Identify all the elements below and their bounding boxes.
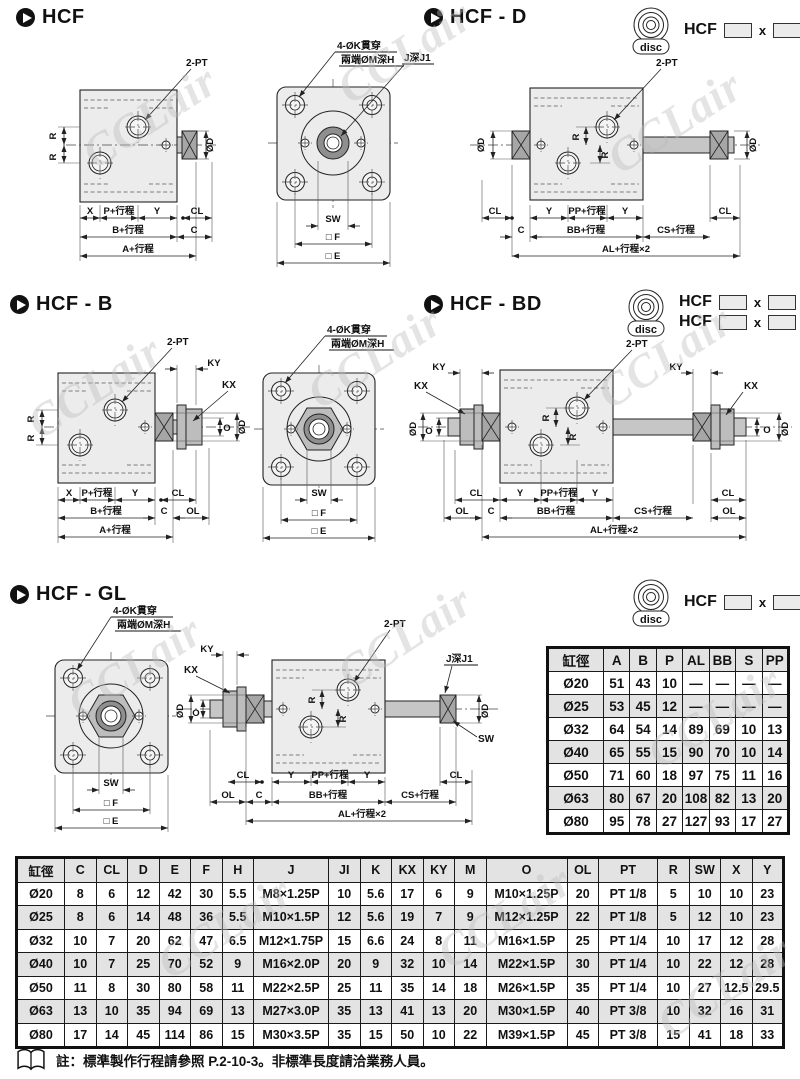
spec-cell: — bbox=[762, 695, 788, 718]
spec-cell: PT 3/8 bbox=[599, 1000, 658, 1024]
spec-cell: 17 bbox=[689, 929, 721, 953]
spec-cell: 16 bbox=[762, 764, 788, 787]
bore-size-box bbox=[719, 295, 747, 310]
spec-cell: 80 bbox=[159, 976, 191, 1000]
spec-cell: 13 bbox=[222, 1000, 254, 1024]
disc-logo-icon: disc bbox=[625, 576, 677, 628]
svg-text:ØD: ØD bbox=[476, 138, 487, 152]
column-header: B bbox=[630, 648, 656, 672]
svg-text:P+行程: P+行程 bbox=[104, 205, 135, 217]
bore-dimension-table-secondary: 缸徑ABPALBBSPPØ20514310————Ø25534512————Ø3… bbox=[546, 646, 790, 835]
row-header-bore: Ø25 bbox=[548, 695, 604, 718]
svg-text:R: R bbox=[26, 415, 37, 422]
hcf-dimension-drawing: 2-PT ØD R R X P+行程 Y CL B+行程 C A+行程 4-ØK… bbox=[0, 30, 440, 280]
spec-cell: 9 bbox=[222, 953, 254, 977]
spec-cell: 20 bbox=[656, 787, 682, 810]
spec-cell: 10 bbox=[65, 929, 97, 953]
spec-cell: 7 bbox=[96, 953, 128, 977]
hcf-bd-side-view bbox=[418, 370, 792, 483]
spec-cell: 22 bbox=[689, 953, 721, 977]
column-header: Y bbox=[752, 858, 784, 883]
spec-cell: 10 bbox=[736, 741, 762, 764]
spec-cell: 35 bbox=[392, 976, 424, 1000]
column-header: PP bbox=[762, 648, 788, 672]
svg-text:PP+行程: PP+行程 bbox=[311, 769, 349, 781]
column-header: JI bbox=[329, 858, 361, 883]
dim-label-kx: KX bbox=[222, 380, 236, 391]
section-title-hcf: HCF bbox=[16, 6, 85, 29]
column-header: D bbox=[128, 858, 160, 883]
svg-text:SW: SW bbox=[311, 488, 326, 499]
table-row: Ø321072062476.5M12×1.75P156.624811M16×1.… bbox=[17, 929, 784, 953]
spec-cell: 8 bbox=[65, 882, 97, 906]
spec-cell: PT 1/4 bbox=[599, 929, 658, 953]
spec-cell: 48 bbox=[159, 906, 191, 930]
spec-cell: M22×1.5P bbox=[486, 953, 567, 977]
spec-cell: 29.5 bbox=[752, 976, 784, 1000]
bore-size-box bbox=[724, 595, 752, 610]
hcf-d-dimension-drawing: 2-PT ØD ØD R R CL Y PP+行程 Y CL C BB+行程 C… bbox=[410, 30, 800, 280]
svg-text:Y: Y bbox=[364, 770, 371, 781]
spec-cell: 20 bbox=[128, 929, 160, 953]
spec-cell: 10 bbox=[689, 882, 721, 906]
section-title-hcf-gl: HCF - GL bbox=[10, 583, 127, 606]
svg-text:disc: disc bbox=[635, 324, 657, 336]
svg-text:KY: KY bbox=[432, 362, 446, 373]
column-header: KX bbox=[392, 858, 424, 883]
spec-cell: 41 bbox=[392, 1000, 424, 1024]
spec-cell: 10 bbox=[721, 906, 753, 930]
bullet-play-icon bbox=[10, 295, 29, 314]
row-header-bore: Ø80 bbox=[548, 810, 604, 834]
svg-text:A+行程: A+行程 bbox=[99, 524, 131, 536]
svg-text:ØD: ØD bbox=[237, 420, 248, 434]
svg-text:BB+行程: BB+行程 bbox=[309, 789, 348, 801]
spec-cell: 9 bbox=[455, 882, 487, 906]
row-header-bore: Ø80 bbox=[17, 1023, 65, 1048]
spec-cell: M10×1.25P bbox=[486, 882, 567, 906]
disc-logo-icon: disc bbox=[625, 4, 677, 56]
spec-cell: 10 bbox=[658, 953, 690, 977]
spec-cell: 86 bbox=[191, 1023, 223, 1048]
svg-text:Y: Y bbox=[154, 206, 161, 217]
spec-cell: 18 bbox=[721, 1023, 753, 1048]
spec-cell: 13 bbox=[736, 787, 762, 810]
spec-cell: 7 bbox=[423, 906, 455, 930]
spec-cell: 40 bbox=[567, 1000, 599, 1024]
row-header-bore: Ø32 bbox=[548, 718, 604, 741]
spec-cell: 11 bbox=[360, 976, 392, 1000]
spec-cell: 60 bbox=[630, 764, 656, 787]
spec-cell: 23 bbox=[752, 906, 784, 930]
spec-cell: 94 bbox=[159, 1000, 191, 1024]
model-code-badge-st: disc HCF x ST bbox=[625, 4, 800, 56]
spec-cell: M8×1.25P bbox=[254, 882, 329, 906]
spec-cell: 62 bbox=[159, 929, 191, 953]
column-header: 缸徑 bbox=[17, 858, 65, 883]
spec-cell: 6.5 bbox=[222, 929, 254, 953]
stroke-box bbox=[768, 315, 796, 330]
table-row: Ø63131035946913M27×3.0P3513411320M30×1.5… bbox=[17, 1000, 784, 1024]
hcf-d-side-view bbox=[470, 88, 760, 200]
table-row: Ø801714451148615M30×3.5P3515501022M39×1.… bbox=[17, 1023, 784, 1048]
svg-text:C: C bbox=[161, 506, 168, 517]
svg-text:OL: OL bbox=[186, 506, 199, 517]
spec-cell: 70 bbox=[159, 953, 191, 977]
svg-text:CS+行程: CS+行程 bbox=[657, 224, 695, 236]
header-row: 缸徑CCLDEFHJJIKKXKYMOOLPTRSWXY bbox=[17, 858, 784, 883]
spec-cell: 20 bbox=[567, 882, 599, 906]
spec-cell: 13 bbox=[762, 718, 788, 741]
spec-cell: 71 bbox=[604, 764, 630, 787]
svg-text:R: R bbox=[568, 433, 579, 440]
spec-cell: 54 bbox=[630, 718, 656, 741]
spec-cell: 19 bbox=[392, 906, 424, 930]
svg-text:ØD: ØD bbox=[748, 138, 759, 152]
spec-cell: 28 bbox=[752, 953, 784, 977]
spec-cell: 12 bbox=[128, 882, 160, 906]
row-header-bore: Ø50 bbox=[548, 764, 604, 787]
svg-text:ØD: ØD bbox=[480, 704, 491, 718]
hcf-front-view bbox=[268, 79, 398, 208]
row-header-bore: Ø32 bbox=[17, 929, 65, 953]
note-text: 註：標準製作行程請參照 P.2-10-3。非標準長度請洽業務人員。 bbox=[56, 1050, 434, 1070]
spec-cell: M12×1.25P bbox=[486, 906, 567, 930]
spec-cell: 6 bbox=[423, 882, 455, 906]
svg-text:R: R bbox=[26, 434, 37, 441]
hcf-b-front-view bbox=[254, 365, 384, 493]
svg-text:OL: OL bbox=[221, 790, 234, 801]
svg-text:Y: Y bbox=[288, 770, 295, 781]
spec-cell: 24 bbox=[392, 929, 424, 953]
spec-cell: 5.6 bbox=[360, 906, 392, 930]
bore-size-box bbox=[724, 23, 752, 38]
svg-text:Y: Y bbox=[546, 206, 553, 217]
svg-text:兩端ØM深H: 兩端ØM深H bbox=[331, 337, 384, 350]
spec-cell: 35 bbox=[329, 1000, 361, 1024]
spec-cell: 17 bbox=[736, 810, 762, 834]
svg-text:SW: SW bbox=[325, 214, 340, 225]
stroke-box bbox=[768, 295, 796, 310]
table-row: Ø20861242305.5M8×1.25P105.61769M10×1.25P… bbox=[17, 882, 784, 906]
spec-cell: M30×3.5P bbox=[254, 1023, 329, 1048]
spec-cell: 6 bbox=[96, 882, 128, 906]
svg-text:SW: SW bbox=[103, 778, 118, 789]
hcf-b-dimension-drawing: 2-PT KY KX O ØD R R X P+行程 Y CL B+行程 C O… bbox=[0, 285, 440, 570]
spec-cell: 10 bbox=[658, 1000, 690, 1024]
svg-text:KY: KY bbox=[200, 644, 214, 655]
spec-cell: 30 bbox=[128, 976, 160, 1000]
svg-text:R: R bbox=[307, 696, 318, 703]
spec-cell: — bbox=[683, 695, 709, 718]
spec-cell: 93 bbox=[709, 810, 735, 834]
column-header: AL bbox=[683, 648, 709, 672]
svg-text:CL: CL bbox=[470, 488, 483, 499]
spec-cell: M26×1.5P bbox=[486, 976, 567, 1000]
svg-text:CL: CL bbox=[450, 770, 463, 781]
spec-cell: 12 bbox=[656, 695, 682, 718]
svg-text:□ F: □ F bbox=[326, 232, 340, 243]
dim-label-ky: KY bbox=[207, 358, 221, 369]
table-row: Ø3264541489691013 bbox=[548, 718, 789, 741]
bullet-play-icon bbox=[424, 295, 443, 314]
spec-cell: 14 bbox=[455, 953, 487, 977]
spec-cell: 18 bbox=[455, 976, 487, 1000]
dim-label-sw-flats: SW bbox=[478, 734, 495, 745]
svg-text:□ E: □ E bbox=[104, 816, 119, 827]
row-header-bore: Ø20 bbox=[548, 672, 604, 695]
spec-cell: 30 bbox=[567, 953, 599, 977]
spec-cell: — bbox=[762, 672, 788, 695]
spec-cell: 11 bbox=[65, 976, 97, 1000]
dim-label-m-depth: 兩端ØM深H bbox=[341, 53, 394, 66]
column-header: R bbox=[658, 858, 690, 883]
spec-cell: M16×1.5P bbox=[486, 929, 567, 953]
spec-cell: 15 bbox=[222, 1023, 254, 1048]
spec-cell: 27 bbox=[689, 976, 721, 1000]
svg-text:□ E: □ E bbox=[312, 526, 327, 537]
spec-cell: 43 bbox=[630, 672, 656, 695]
spec-cell: 14 bbox=[96, 1023, 128, 1048]
footer-note: 註：標準製作行程請參照 P.2-10-3。非標準長度請洽業務人員。 bbox=[16, 1048, 434, 1072]
column-header: O bbox=[486, 858, 567, 883]
spec-cell: 97 bbox=[683, 764, 709, 787]
spec-cell: 14 bbox=[656, 718, 682, 741]
spec-cell: 10 bbox=[423, 953, 455, 977]
svg-text:兩端ØM深H: 兩端ØM深H bbox=[117, 618, 170, 631]
spec-cell: 7 bbox=[96, 929, 128, 953]
svg-text:2-PT: 2-PT bbox=[384, 619, 406, 630]
spec-cell: 17 bbox=[65, 1023, 97, 1048]
hcf-side-view bbox=[66, 90, 216, 202]
spec-cell: 14 bbox=[423, 976, 455, 1000]
svg-text:ØD: ØD bbox=[408, 422, 419, 436]
column-header: PT bbox=[599, 858, 658, 883]
column-header: SW bbox=[689, 858, 721, 883]
svg-text:BB+行程: BB+行程 bbox=[537, 505, 576, 517]
spec-cell: 20 bbox=[455, 1000, 487, 1024]
spec-cell: 69 bbox=[709, 718, 735, 741]
dimension-table-main: 缸徑CCLDEFHJJIKKXKYMOOLPTRSWXYØ20861242305… bbox=[15, 856, 785, 1049]
spec-cell: 89 bbox=[683, 718, 709, 741]
svg-text:B+行程: B+行程 bbox=[112, 224, 144, 236]
spec-cell: 42 bbox=[159, 882, 191, 906]
svg-text:AL+行程×2: AL+行程×2 bbox=[590, 524, 638, 536]
spec-cell: 13 bbox=[360, 1000, 392, 1024]
bore-size-box bbox=[719, 315, 747, 330]
dim-label-4k: 4-ØK貫穿 bbox=[337, 39, 381, 52]
spec-cell: 10 bbox=[65, 953, 97, 977]
svg-text:□ E: □ E bbox=[326, 251, 341, 262]
svg-text:C: C bbox=[488, 506, 495, 517]
spec-cell: 22 bbox=[455, 1023, 487, 1048]
spec-cell: 10 bbox=[721, 882, 753, 906]
spec-cell: M27×3.0P bbox=[254, 1000, 329, 1024]
column-header: S bbox=[736, 648, 762, 672]
spec-cell: 20 bbox=[762, 787, 788, 810]
svg-text:PP+行程: PP+行程 bbox=[540, 487, 578, 499]
spec-cell: 32 bbox=[392, 953, 424, 977]
page-title: HCF bbox=[42, 6, 85, 29]
spec-cell: 5.5 bbox=[222, 882, 254, 906]
svg-text:CS+行程: CS+行程 bbox=[401, 789, 439, 801]
spec-cell: — bbox=[709, 672, 735, 695]
spec-cell: 82 bbox=[709, 787, 735, 810]
spec-cell: PT 1/8 bbox=[599, 882, 658, 906]
hcf-gl-front-view bbox=[46, 652, 176, 781]
column-header: K bbox=[360, 858, 392, 883]
spec-cell: 10 bbox=[96, 1000, 128, 1024]
spec-cell: 10 bbox=[656, 672, 682, 695]
spec-cell: 52 bbox=[191, 953, 223, 977]
svg-text:KX: KX bbox=[744, 381, 758, 392]
spec-cell: — bbox=[709, 695, 735, 718]
spec-cell: 14 bbox=[128, 906, 160, 930]
spec-cell: 6.6 bbox=[360, 929, 392, 953]
svg-text:ØD: ØD bbox=[175, 704, 186, 718]
disc-logo-icon: disc bbox=[620, 286, 672, 338]
spec-cell: 8 bbox=[65, 906, 97, 930]
spec-cell: 5.6 bbox=[360, 882, 392, 906]
spec-cell: 31 bbox=[752, 1000, 784, 1024]
svg-text:PP+行程: PP+行程 bbox=[568, 205, 606, 217]
spec-cell: 12.5 bbox=[721, 976, 753, 1000]
dim-label-2pt: 2-PT bbox=[656, 58, 678, 69]
spec-cell: 25 bbox=[567, 929, 599, 953]
svg-text:Y: Y bbox=[132, 488, 139, 499]
row-header-bore: Ø20 bbox=[17, 882, 65, 906]
dim-label-r: R bbox=[48, 153, 59, 160]
svg-text:CL: CL bbox=[191, 206, 204, 217]
bullet-play-icon bbox=[10, 585, 29, 604]
spec-cell: 5.5 bbox=[222, 906, 254, 930]
dim-label-r: R bbox=[48, 132, 59, 139]
svg-text:CL: CL bbox=[172, 488, 185, 499]
section-title-hcf-d: HCF - D bbox=[424, 6, 527, 29]
spec-cell: 9 bbox=[455, 906, 487, 930]
spec-cell: 67 bbox=[630, 787, 656, 810]
row-header-bore: Ø63 bbox=[17, 1000, 65, 1024]
svg-text:CL: CL bbox=[722, 488, 735, 499]
spec-cell: M10×1.5P bbox=[254, 906, 329, 930]
table-row: Ø80957827127931727 bbox=[548, 810, 789, 834]
svg-text:X: X bbox=[66, 488, 73, 499]
spec-cell: 50 bbox=[392, 1023, 424, 1048]
svg-text:OL: OL bbox=[722, 506, 735, 517]
svg-text:J深J1: J深J1 bbox=[446, 652, 473, 665]
bullet-play-icon bbox=[424, 8, 443, 27]
spec-cell: 15 bbox=[656, 741, 682, 764]
spec-cell: 13 bbox=[423, 1000, 455, 1024]
spec-cell: 5 bbox=[658, 906, 690, 930]
spec-cell: 127 bbox=[683, 810, 709, 834]
column-header: A bbox=[604, 648, 630, 672]
spec-cell: 10 bbox=[736, 718, 762, 741]
spec-cell: 17 bbox=[392, 882, 424, 906]
svg-text:BB+行程: BB+行程 bbox=[567, 224, 606, 236]
bullet-play-icon bbox=[16, 8, 35, 27]
table-row: Ø401072570529M16×2.0P209321014M22×1.5P30… bbox=[17, 953, 784, 977]
column-header: F bbox=[191, 858, 223, 883]
svg-text:R: R bbox=[600, 151, 611, 158]
spec-cell: 36 bbox=[191, 906, 223, 930]
column-header: X bbox=[721, 858, 753, 883]
stroke-box bbox=[773, 23, 800, 38]
spec-cell: PT 1/4 bbox=[599, 976, 658, 1000]
svg-text:□ F: □ F bbox=[312, 508, 326, 519]
spec-cell: 108 bbox=[683, 787, 709, 810]
svg-text:2-PT: 2-PT bbox=[626, 339, 648, 350]
svg-text:2-PT: 2-PT bbox=[167, 337, 189, 348]
svg-text:O: O bbox=[425, 426, 432, 437]
section-title-hcf-bd: HCF - BD bbox=[424, 293, 542, 316]
spec-cell: 51 bbox=[604, 672, 630, 695]
spec-cell: 11 bbox=[736, 764, 762, 787]
stroke-box bbox=[773, 595, 800, 610]
spec-cell: 95 bbox=[604, 810, 630, 834]
svg-text:KX: KX bbox=[184, 665, 198, 676]
spec-cell: — bbox=[736, 695, 762, 718]
spec-cell: 41 bbox=[689, 1023, 721, 1048]
row-header-bore: Ø40 bbox=[548, 741, 604, 764]
svg-text:AL+行程×2: AL+行程×2 bbox=[338, 808, 386, 820]
svg-text:AL+行程×2: AL+行程×2 bbox=[602, 243, 650, 255]
column-header: M bbox=[455, 858, 487, 883]
spec-cell: 65 bbox=[604, 741, 630, 764]
column-header: 缸徑 bbox=[548, 648, 604, 672]
svg-text:Y: Y bbox=[622, 206, 629, 217]
spec-cell: 16 bbox=[721, 1000, 753, 1024]
spec-cell: 18 bbox=[656, 764, 682, 787]
hcf-gl-dimension-drawing: 4-ØK貫穿 兩端ØM深H SW □ F □ E 2-PT KY KX bbox=[0, 575, 540, 860]
svg-text:KY: KY bbox=[669, 362, 683, 373]
table-row: Ø63806720108821320 bbox=[548, 787, 789, 810]
column-header: BB bbox=[709, 648, 735, 672]
spec-cell: 10 bbox=[423, 1023, 455, 1048]
svg-text:ØD: ØD bbox=[780, 422, 791, 436]
svg-text:A+行程: A+行程 bbox=[122, 243, 154, 255]
column-header: C bbox=[65, 858, 97, 883]
spec-cell: 32 bbox=[689, 1000, 721, 1024]
column-header: H bbox=[222, 858, 254, 883]
spec-cell: 12 bbox=[721, 929, 753, 953]
spec-cell: 33 bbox=[752, 1023, 784, 1048]
svg-text:KX: KX bbox=[414, 381, 428, 392]
spec-cell: 23 bbox=[752, 882, 784, 906]
model-code-badge-g: disc HCF x G bbox=[625, 576, 800, 628]
table-row: Ø5071601897751116 bbox=[548, 764, 789, 787]
dim-label-od: ØD bbox=[205, 138, 216, 152]
spec-cell: M30×1.5P bbox=[486, 1000, 567, 1024]
svg-text:C: C bbox=[256, 790, 263, 801]
svg-text:C: C bbox=[518, 225, 525, 236]
svg-text:C: C bbox=[191, 225, 198, 236]
row-header-bore: Ø63 bbox=[548, 787, 604, 810]
model-code-badge-b-bd: disc HCF x B HCF x BD bbox=[620, 286, 800, 338]
book-icon bbox=[16, 1048, 46, 1072]
spec-cell: 28 bbox=[752, 929, 784, 953]
table-row: Ø25861448365.5M10×1.5P125.61979M12×1.25P… bbox=[17, 906, 784, 930]
spec-cell: 64 bbox=[604, 718, 630, 741]
spec-cell: 69 bbox=[191, 1000, 223, 1024]
spec-cell: 27 bbox=[762, 810, 788, 834]
spec-cell: M39×1.5P bbox=[486, 1023, 567, 1048]
spec-cell: 114 bbox=[159, 1023, 191, 1048]
svg-text:R: R bbox=[571, 133, 582, 140]
spec-cell: 5 bbox=[658, 882, 690, 906]
header-row: 缸徑ABPALBBSPP bbox=[548, 648, 789, 672]
svg-text:R: R bbox=[338, 715, 349, 722]
